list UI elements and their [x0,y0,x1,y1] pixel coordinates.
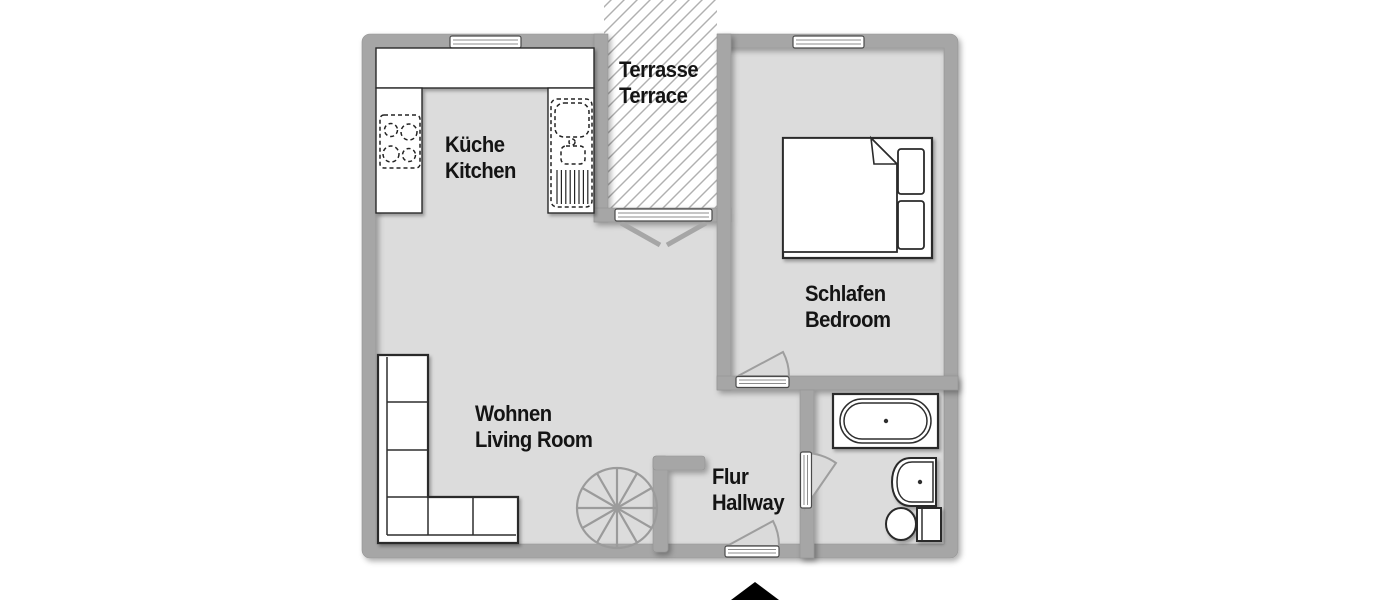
kitchen-terrace-wall [594,34,608,222]
hallway-partition-wall [653,456,668,552]
room-label-terrace-de: Terrasse [619,58,699,82]
floor-plan: Terrasse Terrace Küche Kitchen Schlafen … [0,0,1400,600]
room-label-bedroom-en: Bedroom [805,308,891,332]
toilet-bowl [886,508,916,540]
double-bed-icon [783,138,932,258]
room-label-kitchen-de: Küche [445,133,505,157]
room-label-living-en: Living Room [475,428,592,452]
kitchen-window [450,36,521,48]
room-label-kitchen-en: Kitchen [445,159,516,183]
bedroom-west-wall [717,34,731,390]
bedroom-window [793,36,864,48]
wash-basin-icon [892,458,936,506]
entrance-arrow-icon [731,582,779,600]
room-label-bedroom-de: Schlafen [805,282,886,306]
kitchen-counter-left [376,88,422,213]
kitchen-counter-top [376,48,594,88]
bathtub-icon [833,394,938,448]
spiral-staircase-icon [577,468,657,548]
toilet-tank [917,508,941,541]
room-label-hallway-de: Flur [712,465,749,489]
room-label-terrace-en: Terrace [619,84,688,108]
pillow-icon [898,201,924,249]
floor-plan-canvas: Terrasse Terrace Küche Kitchen Schlafen … [0,0,1400,600]
pillow-icon [898,149,924,194]
hallway-partition-arm [653,456,705,470]
room-label-living-de: Wohnen [475,402,552,426]
terrace-door-threshold [615,209,712,221]
room-label-hallway-en: Hallway [712,491,785,515]
